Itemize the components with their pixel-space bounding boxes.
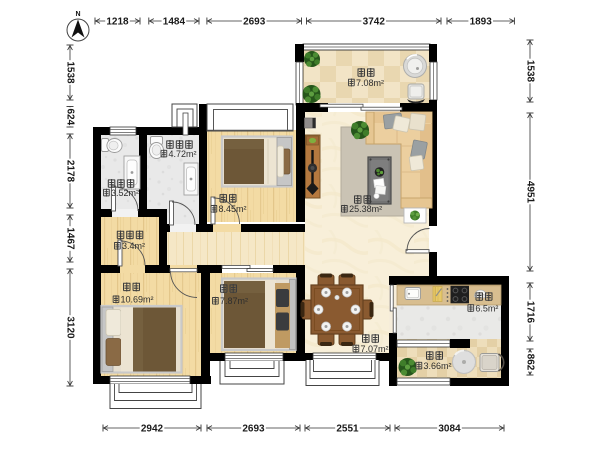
svg-text:2551: 2551 xyxy=(336,423,359,434)
svg-text:2178: 2178 xyxy=(65,160,76,183)
svg-text:3.66m²: 3.66m² xyxy=(424,361,452,371)
svg-text:1538: 1538 xyxy=(65,61,76,84)
svg-text:624: 624 xyxy=(65,108,76,125)
svg-text:N: N xyxy=(75,11,80,18)
svg-text:1467: 1467 xyxy=(65,227,76,250)
svg-text:2693: 2693 xyxy=(242,423,265,434)
svg-text:25.38m²: 25.38m² xyxy=(349,204,382,214)
svg-text:3.52m²: 3.52m² xyxy=(111,188,139,198)
svg-text:2693: 2693 xyxy=(243,16,266,27)
svg-text:1716: 1716 xyxy=(525,301,536,324)
svg-text:6.5m²: 6.5m² xyxy=(475,303,498,313)
svg-text:7.07m²: 7.07m² xyxy=(361,344,389,354)
svg-text:4951: 4951 xyxy=(525,181,536,204)
svg-text:4.72m²: 4.72m² xyxy=(169,149,197,159)
svg-text:1484: 1484 xyxy=(163,16,186,27)
svg-text:3.4m²: 3.4m² xyxy=(122,241,145,251)
svg-text:3742: 3742 xyxy=(363,16,386,27)
svg-text:1538: 1538 xyxy=(525,60,536,83)
svg-text:7.08m²: 7.08m² xyxy=(356,78,384,88)
svg-text:1218: 1218 xyxy=(106,16,129,27)
svg-text:8.45m²: 8.45m² xyxy=(219,204,247,214)
svg-text:2942: 2942 xyxy=(141,423,164,434)
svg-text:862: 862 xyxy=(525,354,536,371)
svg-text:7.87m²: 7.87m² xyxy=(220,296,248,306)
svg-text:3084: 3084 xyxy=(438,423,461,434)
svg-text:3120: 3120 xyxy=(65,316,76,339)
svg-text:10.69m²: 10.69m² xyxy=(121,295,154,305)
svg-text:1893: 1893 xyxy=(470,16,493,27)
